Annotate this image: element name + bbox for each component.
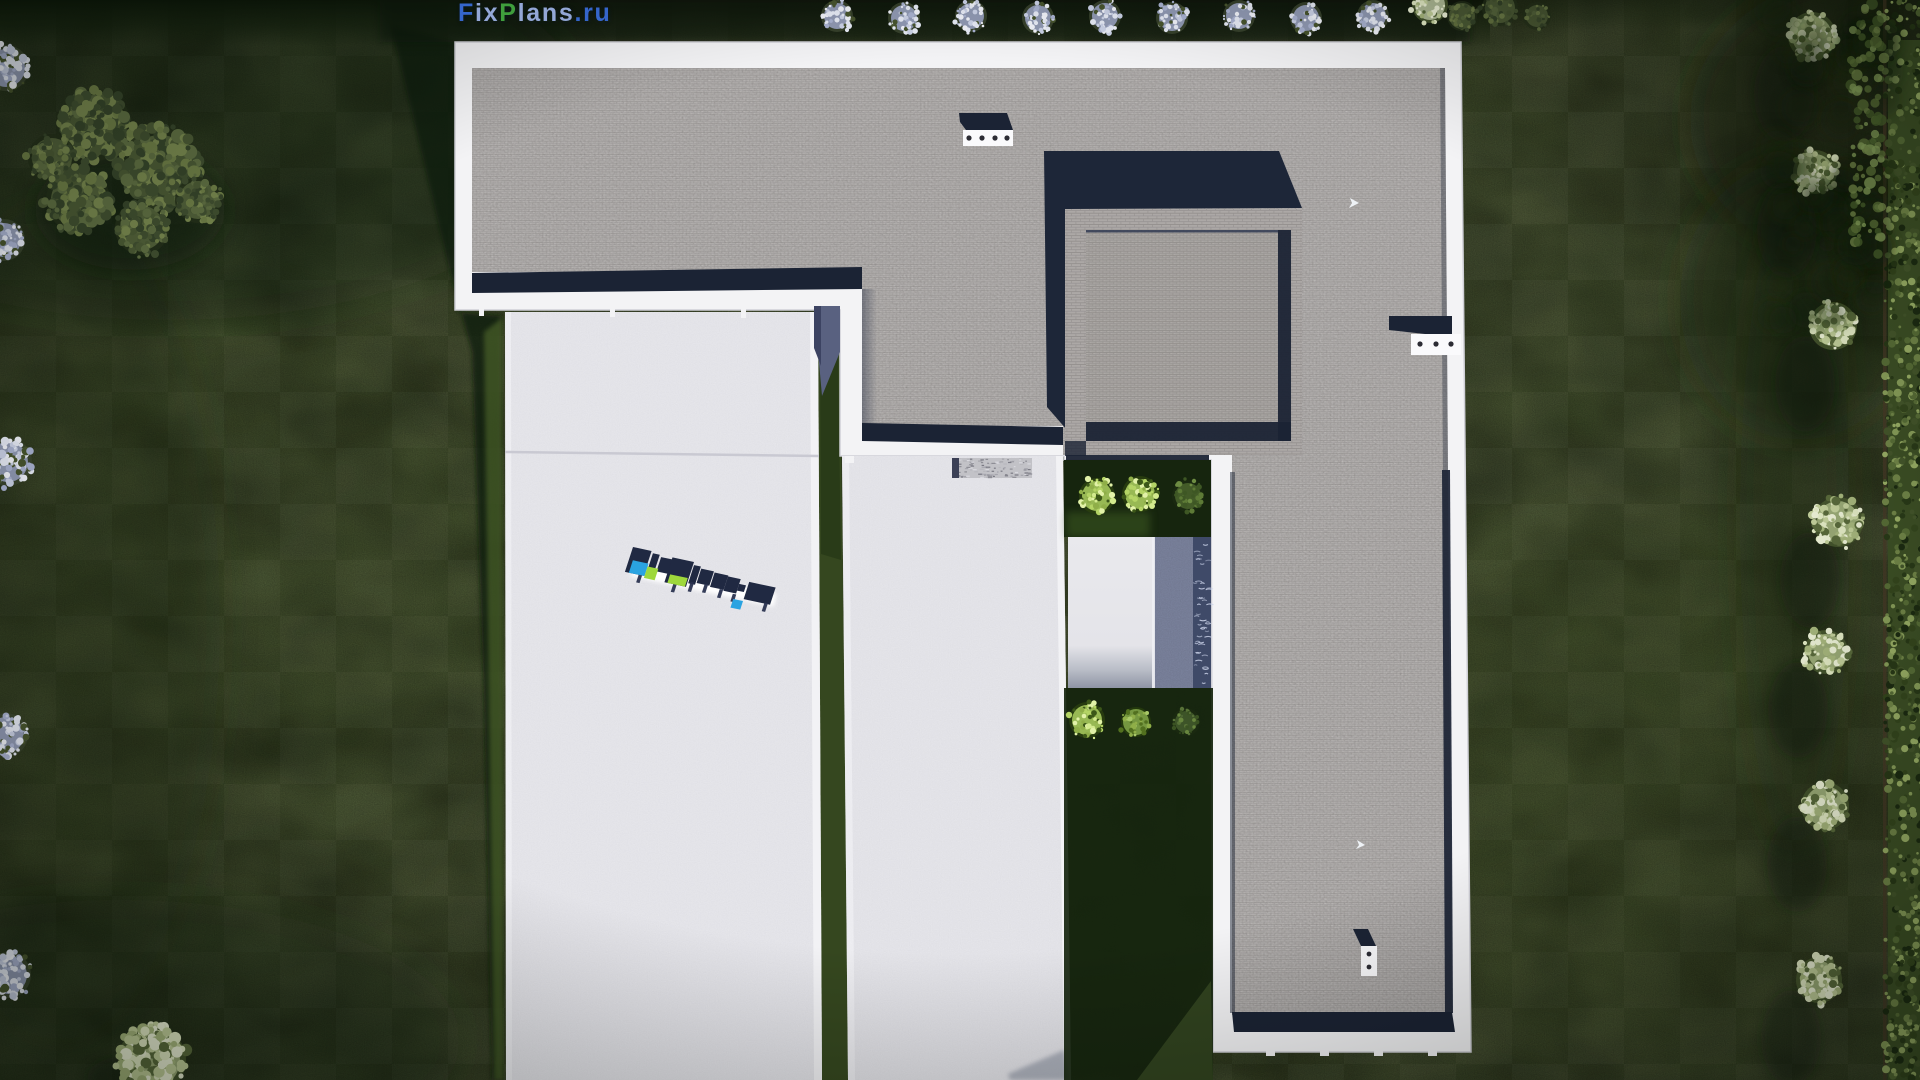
- svg-text:FixPlans.ru: FixPlans.ru: [458, 0, 611, 27]
